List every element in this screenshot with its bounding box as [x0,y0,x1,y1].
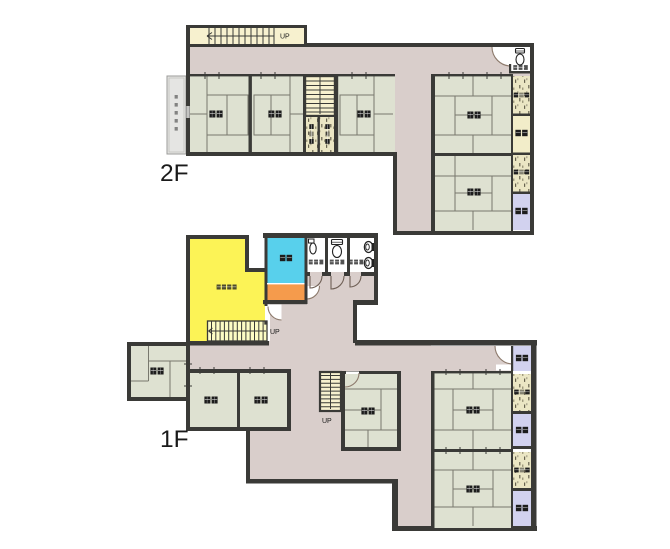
svg-text:UP: UP [280,34,290,41]
svg-text:1F: 1F [160,426,189,453]
svg-text:UP: UP [322,418,332,425]
svg-text:UP: UP [270,329,280,336]
svg-text:2F: 2F [160,160,189,187]
